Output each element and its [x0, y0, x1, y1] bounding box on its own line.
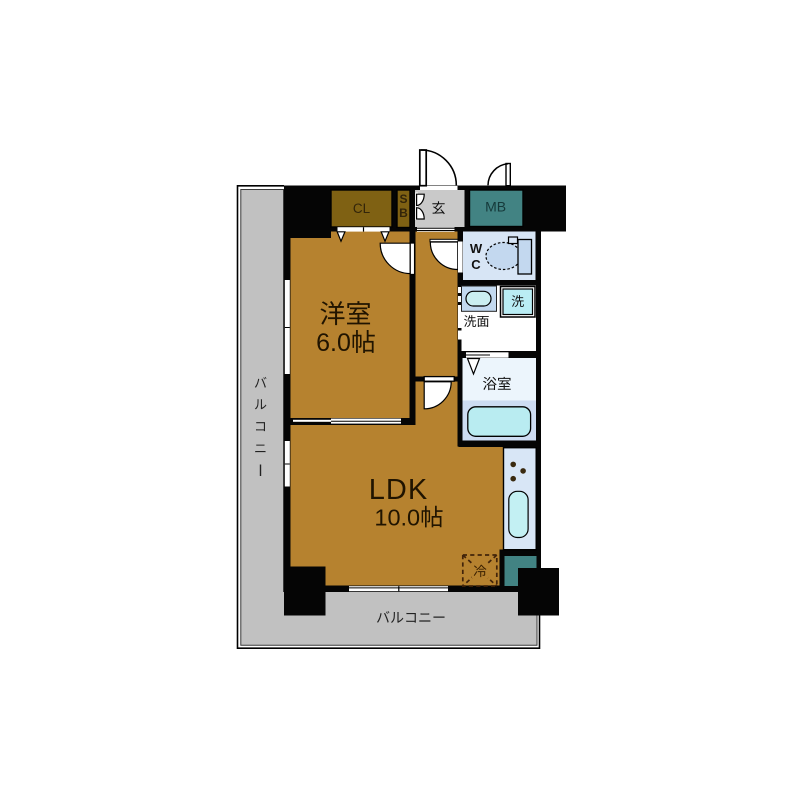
svg-text:W: W	[470, 241, 483, 256]
svg-text:S: S	[399, 192, 407, 206]
svg-text:LDK: LDK	[369, 474, 428, 506]
svg-text:CL: CL	[353, 201, 371, 216]
svg-text:10.0: 10.0	[374, 505, 420, 531]
svg-text:C: C	[471, 257, 481, 272]
svg-text:MB: MB	[485, 199, 506, 215]
svg-text:B: B	[399, 206, 408, 220]
svg-text:6.0: 6.0	[316, 329, 351, 357]
